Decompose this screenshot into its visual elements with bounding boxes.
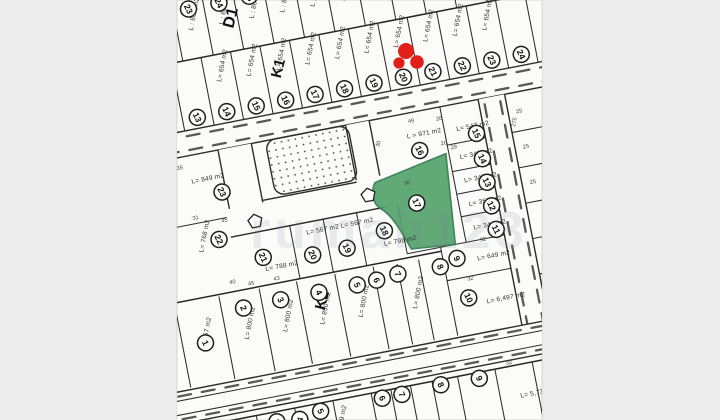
site-plan-svg: L : 800 m2L : 800 m2L : 800 m2L : 800 m2…	[0, 0, 720, 420]
dimension-label: 31	[192, 215, 199, 222]
watermark: rumah123	[250, 202, 528, 260]
dimension-label: 25	[516, 108, 523, 115]
dimension-label: 25	[523, 144, 530, 151]
dimension-label: 26	[436, 116, 443, 123]
dimension-label: 32	[505, 360, 512, 367]
dimension-label: 20	[440, 140, 447, 147]
dimension-label: 40	[229, 279, 236, 286]
dimension-label: 32	[467, 276, 474, 283]
dimension-label: 29	[450, 144, 457, 151]
dimension-label: 45	[248, 281, 255, 288]
dimension-label: 36	[403, 180, 410, 187]
dimension-label: 49	[408, 118, 415, 125]
dimension-label: 25	[529, 179, 536, 186]
site-plan-image[interactable]: L : 800 m2L : 800 m2L : 800 m2L : 800 m2…	[0, 0, 720, 420]
dimension-label: 30	[375, 140, 382, 147]
dimension-label: 45	[221, 217, 228, 224]
dimension-label: 43	[273, 276, 280, 283]
dimension-label: 35	[176, 165, 183, 172]
